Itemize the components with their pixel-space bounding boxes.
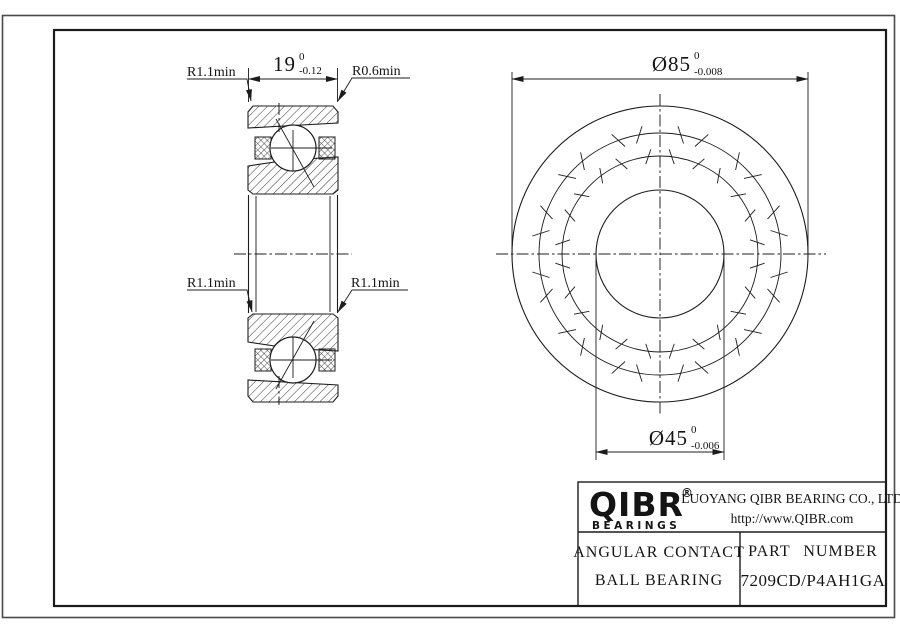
cage-pocket-edge: [731, 311, 746, 314]
cage-pocket-edge: [616, 339, 628, 349]
bore-dim-tol-lower: -0.006: [691, 440, 720, 452]
od-dim-value: Ø85: [652, 52, 691, 76]
radius-label-top-left: R1.1min: [187, 65, 236, 80]
cage-pocket-edge: [616, 159, 628, 169]
cage-pocket-edge: [693, 339, 705, 349]
logo-text: QIBR: [589, 485, 684, 524]
leader-top-right: [338, 78, 410, 101]
cage-pocket-edge: [744, 175, 762, 179]
leader-mid-right: [338, 290, 408, 312]
title-block: QIBR ® BEARINGS LUOYANG QIBR BEARING CO.…: [573, 482, 900, 606]
cage-pocket-edge: [693, 159, 705, 169]
radius-label-top-right: R0.6min: [352, 64, 401, 79]
cage-pocket-edge: [558, 175, 576, 179]
width-dim-tol-lower: -0.12: [299, 65, 322, 77]
company-website: http://www.QIBR.com: [731, 511, 854, 526]
cage-pocket-edge: [612, 134, 625, 146]
cage-pocket-edge: [558, 330, 576, 334]
sheet-outer-border: [3, 16, 895, 618]
bore-dim-value: Ø45: [649, 426, 688, 450]
cage-pocket-edge: [600, 168, 603, 183]
product-name-line2: BALL BEARING: [595, 572, 723, 589]
company-name: LUOYANG QIBR BEARING CO., LTD: [681, 491, 900, 506]
cage-pocket-edge: [565, 210, 575, 222]
cage-pocket-edge: [736, 338, 740, 356]
cage-pocket-edge: [695, 134, 708, 146]
cage-pocket-edge: [745, 287, 755, 299]
cage-pocket-edge: [736, 152, 740, 170]
dimension-width: 19 0 -0.12: [249, 51, 338, 102]
width-dim-tol-upper: 0: [299, 51, 305, 63]
cage-top-left: [255, 137, 271, 159]
cage-pocket-edge: [717, 325, 720, 340]
cage-pocket-edge: [612, 362, 625, 374]
cage-pocket-edge: [581, 152, 585, 170]
cage-pocket-edge: [565, 287, 575, 299]
cage-pocket-edge: [540, 289, 552, 302]
front-view: [496, 94, 826, 416]
cage-pocket-edge: [731, 194, 746, 197]
cage-pocket-edge: [574, 311, 589, 314]
company-logo: QIBR ® BEARINGS: [589, 485, 693, 532]
bore-dim-tol-upper: 0: [691, 424, 697, 436]
drawing-sheet: 19 0 -0.12 R1.1min R0.6min R1.1min R1.1m…: [0, 0, 900, 636]
cross-section-view: [234, 103, 352, 405]
od-dim-tol-lower: -0.008: [694, 66, 723, 78]
cage-pocket-edge: [717, 168, 720, 183]
cage-pocket-edge: [745, 210, 755, 222]
leader-mid-left: [187, 290, 252, 312]
cage-pocket-edge: [574, 194, 589, 197]
cage-pocket-edge: [768, 289, 780, 302]
part-number-label: PART NUMBER: [748, 543, 878, 560]
radius-label-mid-right: R1.1min: [351, 276, 400, 291]
part-number-value: 7209CD/P4AH1GA: [741, 571, 886, 590]
width-dim-value: 19: [273, 52, 296, 76]
cage-pocket-edge: [695, 362, 708, 374]
od-dim-tol-upper: 0: [694, 50, 700, 62]
cage-pocket-edge: [540, 206, 552, 219]
logo-subtext: BEARINGS: [592, 520, 680, 532]
radius-label-mid-left: R1.1min: [187, 276, 236, 291]
cage-pocket-edge: [600, 325, 603, 340]
cage-bottom-left: [255, 349, 271, 371]
cage-pocket-edge: [744, 330, 762, 334]
cage-pocket-edge: [768, 206, 780, 219]
product-name-line1: ANGULAR CONTACT: [573, 544, 745, 561]
cage-pocket-edge: [581, 338, 585, 356]
drawing-canvas: 19 0 -0.12 R1.1min R0.6min R1.1min R1.1m…: [0, 0, 900, 636]
leader-top-left: [187, 79, 251, 101]
